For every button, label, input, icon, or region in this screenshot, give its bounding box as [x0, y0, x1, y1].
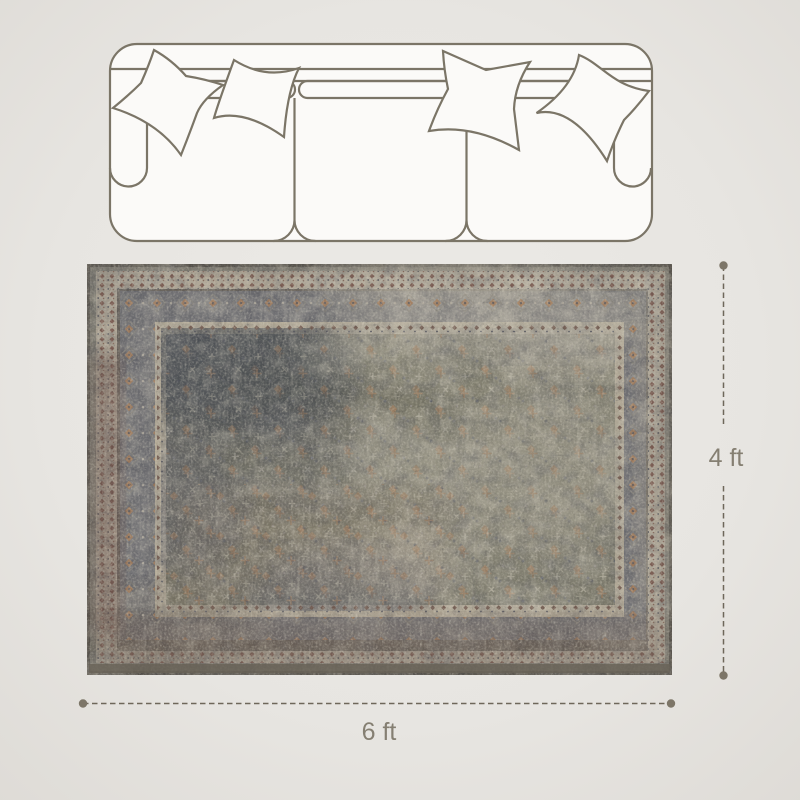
svg-text:6 ft: 6 ft [362, 718, 397, 746]
svg-text:4 ft: 4 ft [709, 444, 744, 472]
